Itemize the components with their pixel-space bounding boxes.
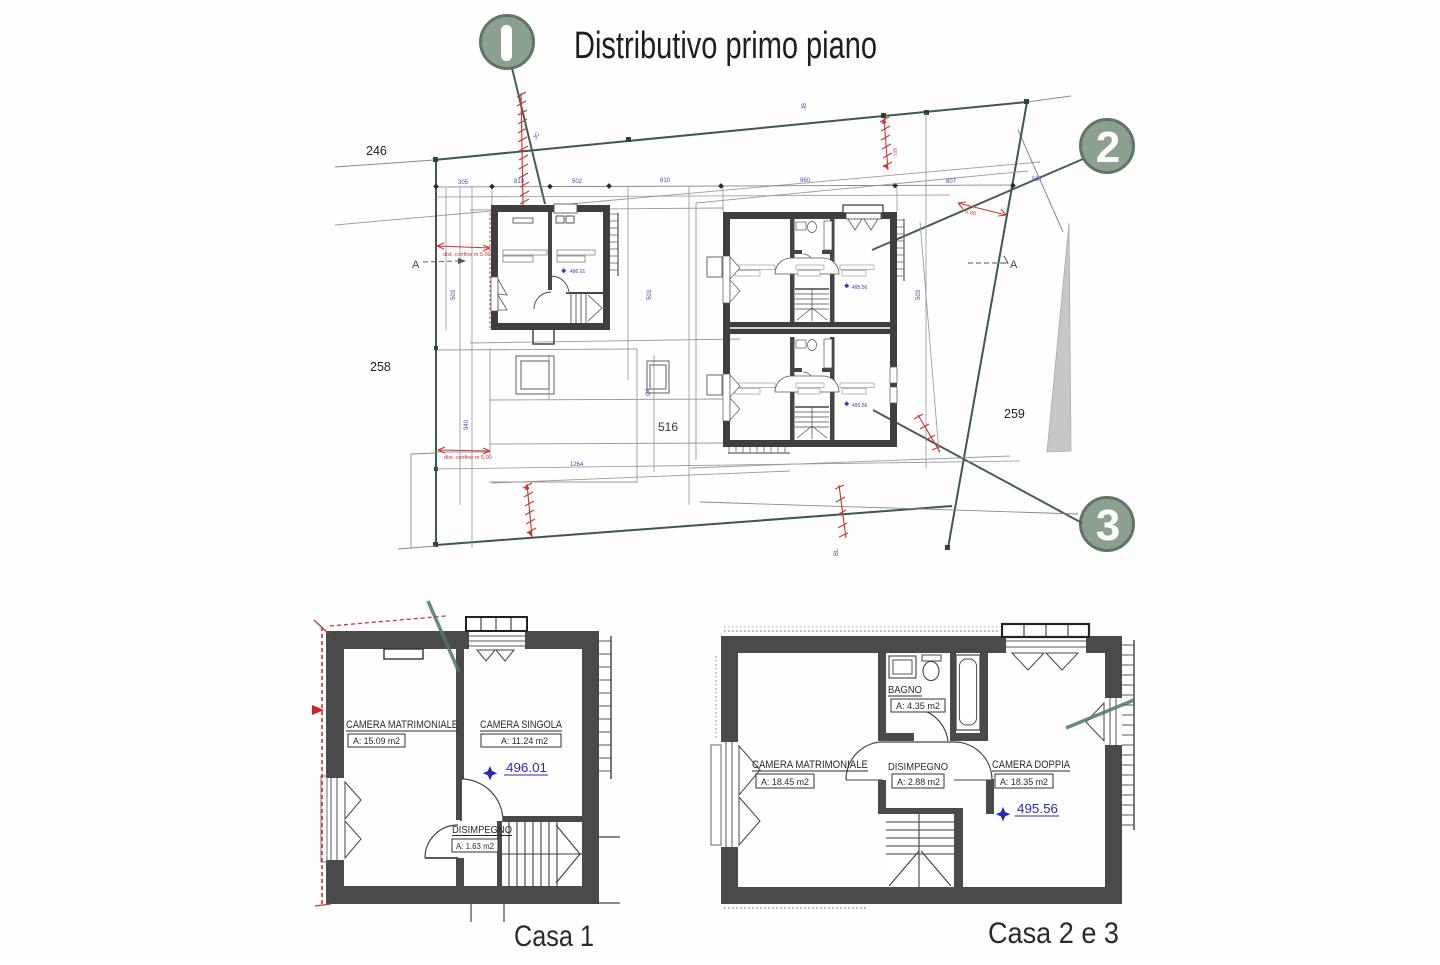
svg-text:A: 1.63 m2: A: 1.63 m2 — [456, 841, 494, 851]
svg-text:2: 2 — [1096, 123, 1120, 172]
svg-text:A: A — [1010, 259, 1018, 271]
svg-text:Casa 2 e 3: Casa 2 e 3 — [988, 917, 1119, 950]
svg-text:305: 305 — [458, 180, 469, 186]
svg-text:Distributivo primo piano: Distributivo primo piano — [574, 25, 877, 67]
svg-text:496.01: 496.01 — [570, 269, 586, 275]
svg-text:C4: C4 — [646, 388, 652, 396]
svg-text:BL: BL — [834, 548, 840, 556]
svg-text:501: 501 — [891, 148, 898, 157]
svg-text:A: 15.09 m2: A: 15.09 m2 — [353, 736, 400, 747]
svg-text:A: 18.45 m2: A: 18.45 m2 — [761, 777, 809, 788]
svg-text:507: 507 — [1032, 177, 1043, 183]
svg-text:CAMERA SINGOLA: CAMERA SINGOLA — [480, 719, 563, 731]
svg-text:810: 810 — [660, 178, 671, 184]
svg-text:259: 259 — [1004, 407, 1025, 421]
svg-text:503: 503 — [451, 289, 457, 300]
svg-text:DISIMPEGNO: DISIMPEGNO — [452, 825, 512, 836]
svg-text:BAGNO: BAGNO — [888, 685, 922, 696]
svg-text:503: 503 — [916, 289, 922, 300]
svg-text:503: 503 — [647, 289, 653, 300]
svg-text:246: 246 — [366, 144, 387, 158]
svg-text:dist. confine m 5.00: dist. confine m 5.00 — [443, 252, 491, 258]
svg-text:A: 4.35 m2: A: 4.35 m2 — [896, 701, 940, 711]
svg-text:258: 258 — [370, 360, 391, 374]
svg-text:Casa 1: Casa 1 — [514, 920, 594, 953]
svg-text:496.01: 496.01 — [506, 761, 547, 775]
svg-text:dist. confine m 5.00: dist. confine m 5.00 — [444, 455, 492, 461]
svg-text:516: 516 — [658, 420, 678, 434]
svg-text:3: 3 — [1096, 501, 1120, 550]
svg-text:DISIMPEGNO: DISIMPEGNO — [888, 761, 948, 773]
svg-text:807: 807 — [946, 179, 957, 185]
svg-text:A: 11.24 m2: A: 11.24 m2 — [501, 736, 548, 747]
svg-text:810: 810 — [514, 179, 525, 185]
svg-text:JB: JB — [802, 103, 808, 110]
svg-text:A: 2.88 m2: A: 2.88 m2 — [897, 777, 940, 788]
svg-text:A: 18.35 m2: A: 18.35 m2 — [1000, 777, 1048, 788]
svg-text:960: 960 — [800, 178, 811, 184]
svg-text:495.56: 495.56 — [1017, 802, 1058, 816]
svg-text:CAMERA MATRIMONIALE: CAMERA MATRIMONIALE — [752, 759, 868, 771]
svg-text:1264: 1264 — [570, 462, 584, 468]
svg-text:A: A — [412, 259, 420, 271]
svg-text:CAMERA DOPPIA: CAMERA DOPPIA — [992, 759, 1071, 771]
svg-text:495.56: 495.56 — [852, 285, 868, 291]
svg-text:940: 940 — [464, 419, 470, 430]
svg-text:CAMERA MATRIMONIALE: CAMERA MATRIMONIALE — [346, 719, 458, 731]
svg-text:502: 502 — [572, 179, 583, 185]
